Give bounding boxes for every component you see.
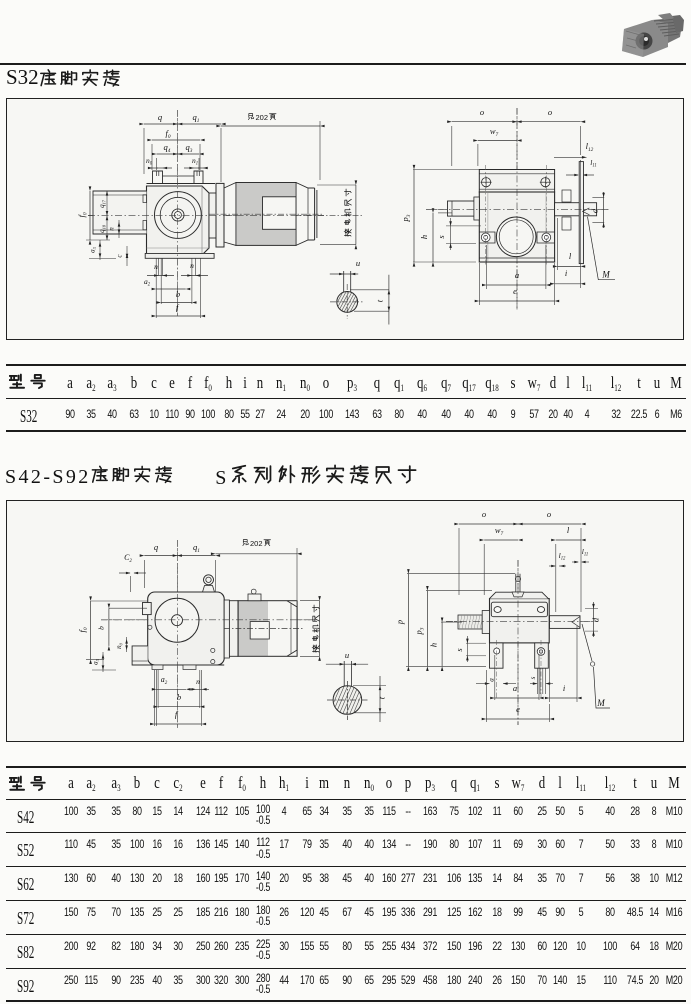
svg-text:q: q [154,542,159,552]
svg-text:202: 202 [250,539,263,548]
svg-text:n1: n1 [192,156,198,167]
svg-text:a2: a2 [161,675,168,686]
svg-text:S32: S32 [6,65,39,89]
svg-text:q1: q1 [193,112,200,124]
svg-text:o: o [482,509,486,519]
svg-text:i: i [565,268,568,278]
svg-text:o: o [547,509,551,519]
svg-text:q3: q3 [186,142,193,154]
svg-text:w7: w7 [490,126,499,138]
svg-text:l12: l12 [586,141,594,153]
svg-text:t: t [375,299,385,302]
svg-text:t: t [377,696,387,699]
svg-text:u: u [356,258,360,268]
svg-text:l11: l11 [590,158,596,169]
svg-text:h: h [429,643,439,647]
svg-text:a2: a2 [144,277,151,288]
svg-text:f0: f0 [77,212,89,217]
svg-text:M: M [601,270,610,280]
svg-text:l12: l12 [559,551,566,562]
svg-text:S42-S92: S42-S92 [5,466,91,488]
svg-text:o: o [548,107,552,117]
svg-text:c: c [116,254,124,258]
svg-text:q4: q4 [164,142,171,154]
svg-text:s: s [436,235,446,239]
svg-text:a: a [513,683,517,693]
svg-text:q: q [158,112,163,122]
svg-text:e: e [513,286,517,296]
svg-text:n0: n0 [115,642,124,649]
svg-text:C2: C2 [124,553,132,564]
svg-text:a: a [488,678,496,682]
svg-text:b: b [97,626,106,630]
svg-text:h: h [419,235,429,239]
svg-text:S: S [215,467,226,489]
svg-text:f: f [175,709,179,719]
svg-text:u: u [345,650,349,660]
svg-text:a3: a3 [89,247,98,253]
svg-text:s: s [529,676,537,679]
svg-text:l: l [569,251,572,261]
svg-text:202: 202 [256,113,269,122]
svg-text:f0: f0 [77,627,89,632]
svg-text:w7: w7 [495,525,504,537]
svg-text:f0: f0 [165,128,170,140]
svg-text:n: n [108,227,116,231]
svg-text:p: p [395,620,405,625]
svg-text:n: n [190,261,194,270]
svg-text:n0: n0 [146,156,153,167]
svg-text:o: o [480,107,484,117]
svg-text:M: M [596,698,605,708]
svg-text:l11: l11 [582,547,588,558]
svg-text:a3: a3 [92,659,101,665]
svg-text:q1: q1 [193,542,200,554]
svg-text:l: l [567,525,570,535]
svg-text:p3: p3 [414,627,426,635]
svg-text:s: s [454,648,464,652]
svg-text:p3: p3 [400,214,412,222]
svg-text:i: i [563,683,566,693]
